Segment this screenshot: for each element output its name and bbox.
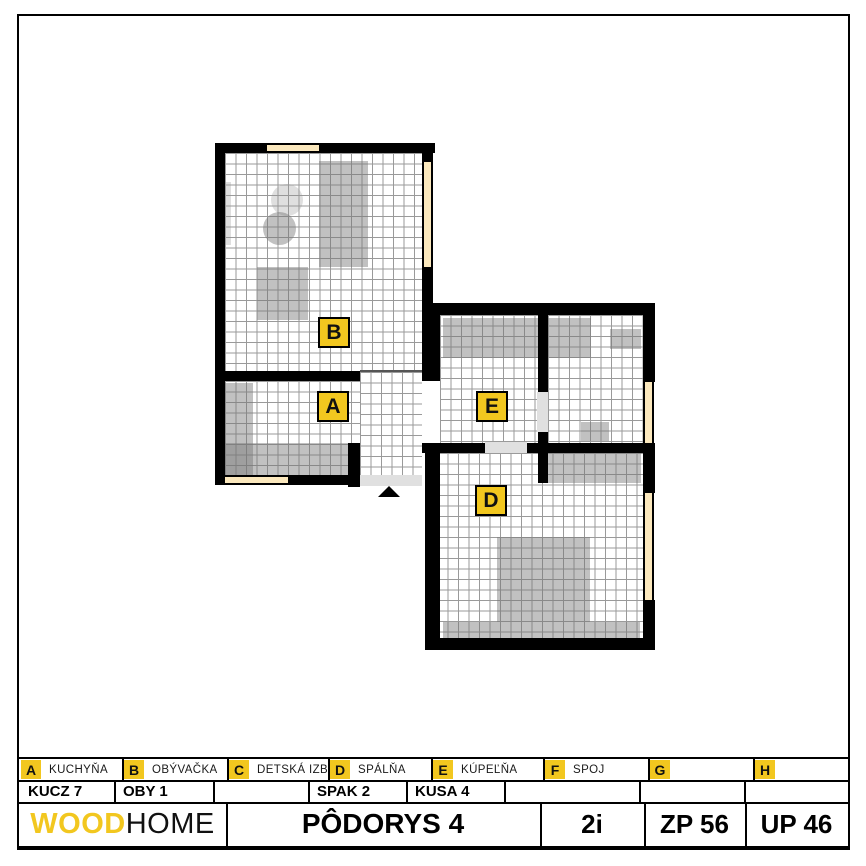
wall xyxy=(348,443,360,487)
window-b-right xyxy=(422,162,433,267)
legend-label-c: DETSKÁ IZBA xyxy=(257,764,328,776)
brand-logo: WOODHOME xyxy=(19,802,226,846)
wall-d-stub xyxy=(538,443,548,483)
code-cell-1: KUCZ 7 xyxy=(19,780,114,802)
table-line xyxy=(744,780,746,802)
code-cell-5: KUSA 4 xyxy=(406,780,504,802)
code-value: KUSA 4 xyxy=(406,783,469,800)
wall xyxy=(538,432,548,443)
wall xyxy=(643,315,655,382)
up-value: UP 46 xyxy=(745,802,848,846)
door-e-to-wc xyxy=(537,392,548,432)
kitchen-counter-bottom xyxy=(225,443,348,475)
table-line xyxy=(504,780,506,802)
zp-value: ZP 56 xyxy=(644,802,745,846)
entrance-door xyxy=(360,475,422,486)
legend-badge-h: H xyxy=(755,760,775,779)
radiator-furniture xyxy=(225,182,231,245)
legend-label-d: SPÁLŇA xyxy=(358,764,406,776)
chair-circle-furniture xyxy=(263,212,296,245)
drawing-sheet: A B D E A KUCHYŇA B OBÝVAČKA C DETSKÁ IZ… xyxy=(0,0,866,866)
door-to-room-d xyxy=(485,442,527,453)
chair-circle-furniture xyxy=(271,184,303,216)
wc-tiles xyxy=(548,318,591,358)
wall-d-left xyxy=(425,443,440,650)
legend-cell-g: G xyxy=(648,759,753,780)
brand-wood-text: WOOD xyxy=(30,808,125,841)
legend-cell-f: F SPOJ xyxy=(543,759,648,780)
window-a-bottom xyxy=(225,475,288,485)
table-line xyxy=(639,780,641,802)
sink-furniture xyxy=(610,329,641,349)
room-label-b: B xyxy=(318,317,350,348)
code-value: KUCZ 7 xyxy=(19,783,82,800)
legend-badge-e: E xyxy=(433,760,453,779)
corridor-boundary-line xyxy=(360,370,422,372)
wall-d-bottom xyxy=(425,638,655,650)
wall-e-wc-divider xyxy=(538,315,548,392)
legend-table: A KUCHYŇA B OBÝVAČKA C DETSKÁ IZBA D SPÁ… xyxy=(17,757,850,848)
drawing-title: PÔDORYS 4 xyxy=(226,802,540,846)
wardrobe-bottom-furniture xyxy=(443,622,640,638)
sofa-bed-furniture xyxy=(319,161,368,267)
legend-badge-g: G xyxy=(650,760,670,779)
wall-wing-top xyxy=(422,303,655,315)
window-d-right xyxy=(643,493,654,600)
wardrobe-top-furniture xyxy=(548,453,641,483)
entrance-arrow-icon xyxy=(378,486,400,497)
legend-badge-d: D xyxy=(330,760,350,779)
bed-furniture xyxy=(497,537,590,622)
legend-cell-d: D SPÁLŇA xyxy=(328,759,431,780)
legend-cell-b: B OBÝVAČKA xyxy=(122,759,227,780)
code-cell-2: OBY 1 xyxy=(114,780,213,802)
room-label-a: A xyxy=(317,391,349,422)
window-wc-right xyxy=(643,382,654,443)
legend-label-a: KUCHYŇA xyxy=(49,764,108,776)
shower-tiles xyxy=(443,318,538,358)
wall xyxy=(215,475,225,485)
code-value: OBY 1 xyxy=(114,783,168,800)
wall xyxy=(215,143,435,153)
corridor-floor xyxy=(360,372,422,475)
legend-badge-b: B xyxy=(124,760,144,779)
toilet-furniture xyxy=(581,422,609,441)
window-b-top xyxy=(267,143,319,153)
legend-cell-e: E KÚPEĽŇA xyxy=(431,759,543,780)
legend-badge-a: A xyxy=(21,760,41,779)
code-cell-3 xyxy=(213,780,308,802)
wall-a-b-divider xyxy=(215,371,360,381)
brand-home-text: HOME xyxy=(126,808,215,841)
legend-cell-a: A KUCHYŇA xyxy=(19,759,122,780)
opening-corridor-to-e xyxy=(422,381,440,443)
room-label-d: D xyxy=(475,485,507,516)
legend-label-b: OBÝVAČKA xyxy=(152,764,218,776)
code-cell-4: SPAK 2 xyxy=(308,780,406,802)
layout-type: 2i xyxy=(540,802,644,846)
code-value: SPAK 2 xyxy=(308,783,370,800)
legend-badge-c: C xyxy=(229,760,249,779)
legend-label-f: SPOJ xyxy=(573,764,605,776)
legend-cell-h: H xyxy=(753,759,848,780)
wall xyxy=(215,381,225,485)
wall xyxy=(643,443,655,493)
table-furniture xyxy=(257,267,308,320)
wall xyxy=(422,143,433,162)
legend-label-e: KÚPEĽŇA xyxy=(461,764,518,776)
room-label-e: E xyxy=(476,391,508,422)
legend-cell-c: C DETSKÁ IZBA xyxy=(227,759,328,780)
legend-badge-f: F xyxy=(545,760,565,779)
wall xyxy=(215,143,225,385)
